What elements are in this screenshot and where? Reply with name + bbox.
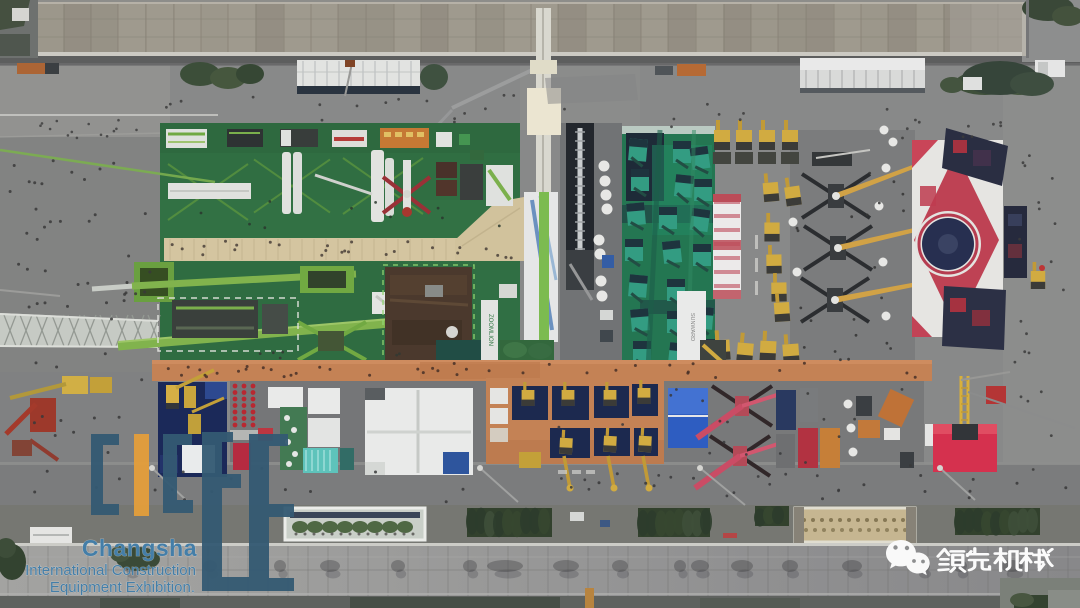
svg-text:Equipment Exhibition.: Equipment Exhibition. [50, 579, 195, 596]
svg-text:SUNWARD: SUNWARD [689, 313, 695, 341]
svg-text:Changsha: Changsha [82, 535, 197, 561]
svg-text:ZOOMLION: ZOOMLION [487, 314, 493, 346]
svg-text:International Construction: International Construction [25, 562, 196, 579]
